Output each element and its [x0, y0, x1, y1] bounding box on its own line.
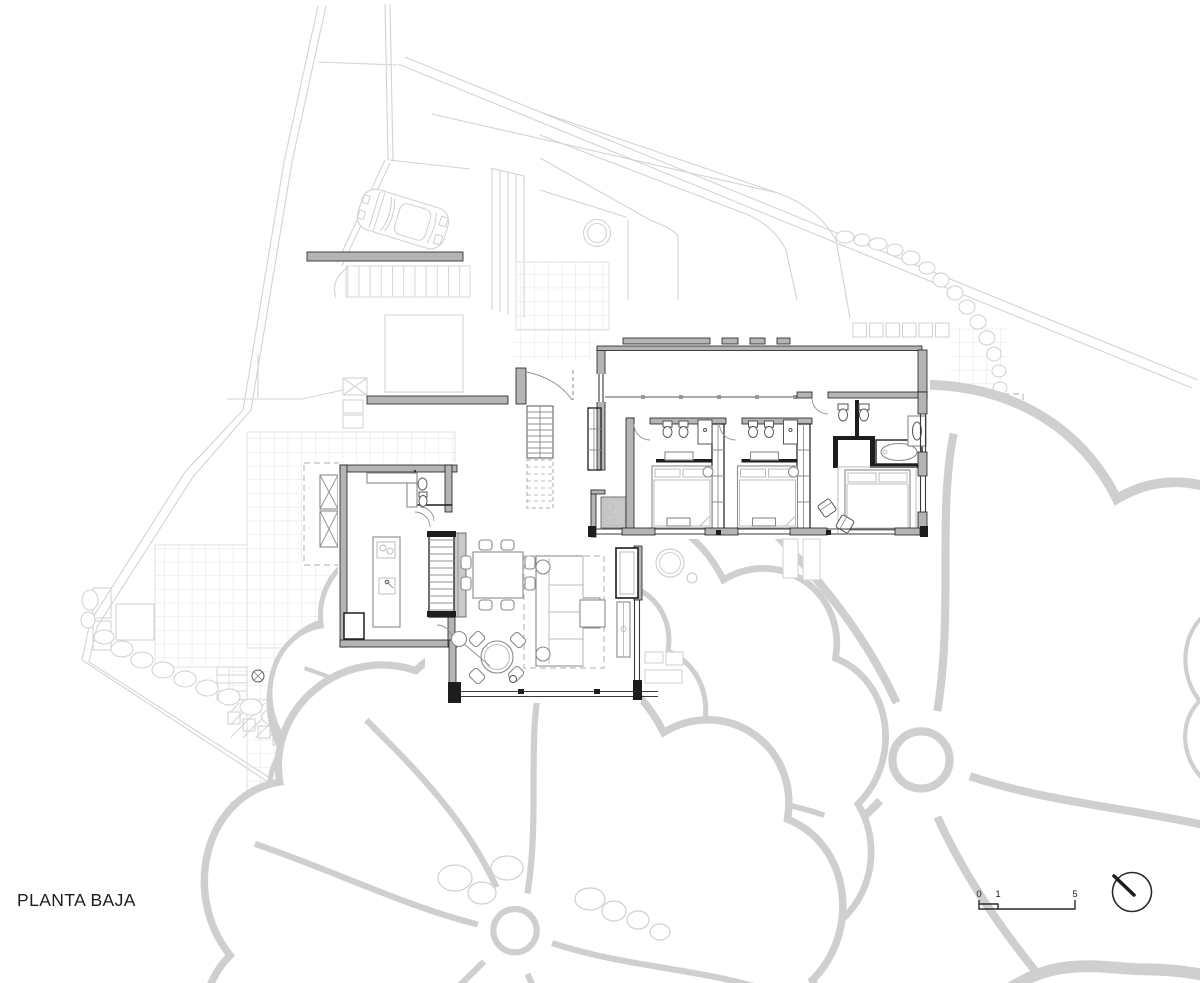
entry-wall — [367, 396, 508, 404]
entry-gate — [343, 378, 367, 428]
garden-wall — [307, 252, 463, 261]
outdoor-appliances — [320, 475, 338, 547]
north-indicator-icon — [1113, 873, 1152, 912]
floor-plan-canvas: PLANTA BAJA 0 1 5 — [0, 0, 1200, 983]
plan-title: PLANTA BAJA — [17, 890, 136, 910]
master-bed — [845, 470, 910, 530]
scale-label-0: 0 — [976, 889, 981, 900]
floor-plan-sheet: PLANTA BAJA 0 1 5 — [0, 0, 1200, 983]
parked-car — [354, 186, 452, 252]
scale-label-1: 1 — [995, 889, 1000, 900]
scale-label-5: 5 — [1072, 889, 1077, 900]
main-staircase — [427, 531, 466, 617]
